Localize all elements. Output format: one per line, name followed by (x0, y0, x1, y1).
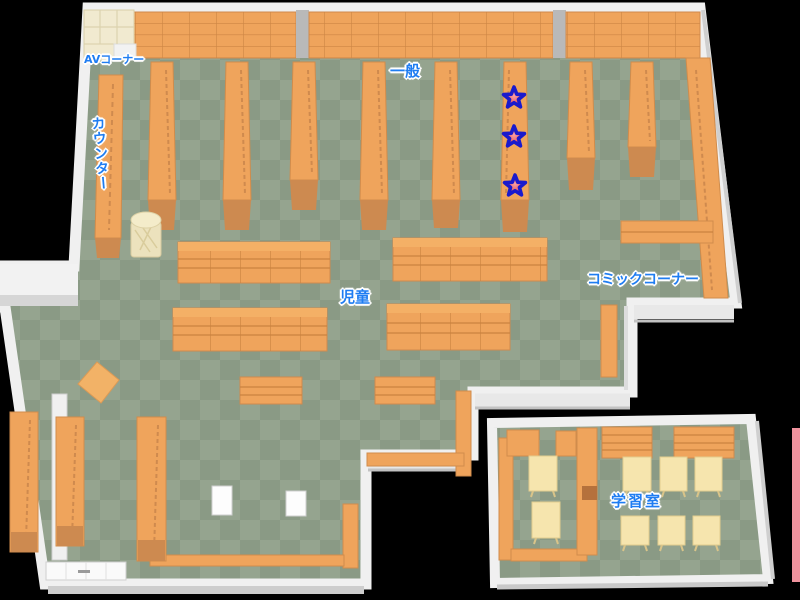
top-wall-bookshelves (132, 10, 700, 58)
library-map: AVコーナー カウンター 一般 児童 コミックコーナー 学習室 (0, 0, 800, 600)
low-bookshelf (393, 238, 547, 281)
study-table (660, 457, 687, 497)
area-label-av-corner: AVコーナー (84, 51, 144, 67)
area-label-comic-corner: コミックコーナー (587, 269, 699, 289)
bench (375, 377, 435, 404)
low-bookshelf (178, 242, 330, 283)
wall-gap (553, 10, 566, 58)
rotating-rack (131, 212, 161, 257)
map-canvas (0, 0, 800, 600)
bookshelf-aisle (148, 62, 176, 230)
area-label-general: 一般 (390, 60, 420, 81)
bookshelf-aisle (360, 62, 388, 230)
bench (240, 377, 302, 404)
low-bookshelf (173, 308, 327, 351)
room-divider (577, 428, 597, 555)
bookshelf-aisle (290, 62, 318, 210)
area-label-study-room: 学習室 (611, 490, 662, 511)
bookshelf-aisle (56, 417, 84, 546)
kiosk-box[interactable] (286, 491, 306, 516)
bookshelf-aisle (628, 62, 656, 177)
study-table (695, 457, 722, 497)
bookshelf-aisle (432, 62, 460, 228)
bookshelf-aisle (137, 417, 166, 561)
cutoff-structure (792, 428, 800, 582)
bookshelf-aisle (223, 62, 251, 230)
slat-shelf (674, 427, 734, 458)
bookshelf-aisle (567, 62, 595, 190)
entrance-door[interactable] (46, 562, 126, 580)
low-bookshelf (387, 304, 510, 350)
study-table (529, 456, 557, 497)
bookshelf-aisle (10, 412, 38, 552)
slat-shelf (602, 427, 652, 458)
area-label-children: 児童 (340, 286, 370, 307)
study-table (532, 502, 560, 544)
wall-gap (296, 10, 309, 58)
kiosk-box[interactable] (212, 486, 232, 515)
